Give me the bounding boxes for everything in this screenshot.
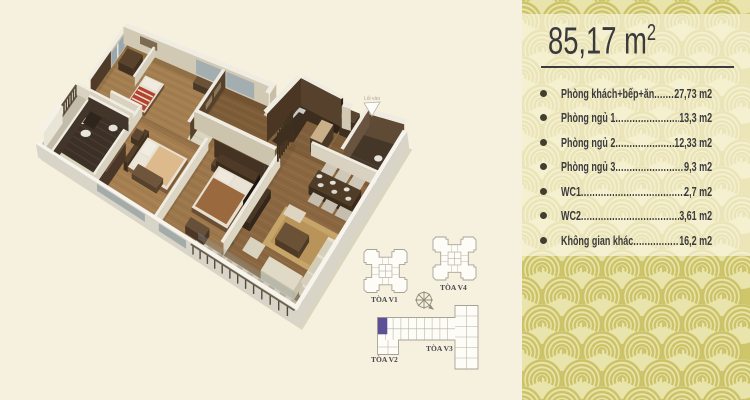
svg-text:TÒA V1: TÒA V1 [371, 294, 398, 304]
svg-text:Lối vào: Lối vào [364, 96, 380, 102]
svg-text:TÒA V3: TÒA V3 [426, 343, 453, 353]
svg-text:TÒA V4: TÒA V4 [440, 282, 467, 292]
svg-text:TÒA V2: TÒA V2 [371, 354, 398, 364]
